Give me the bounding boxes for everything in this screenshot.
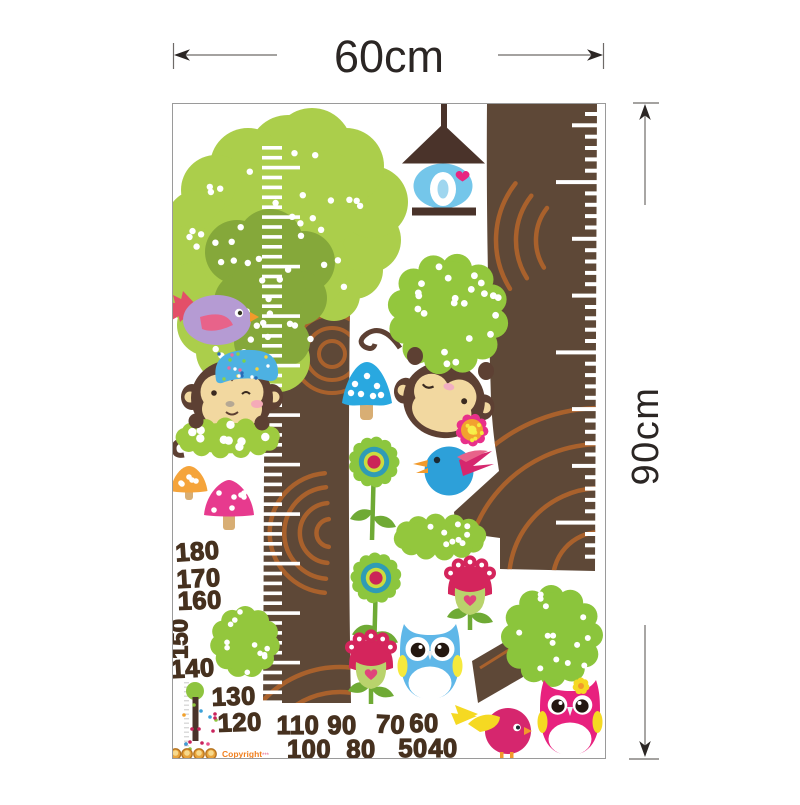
svg-text:180: 180	[174, 537, 220, 568]
svg-text:60: 60	[409, 710, 438, 738]
svg-text:140: 140	[170, 654, 215, 684]
svg-text:120: 120	[217, 708, 262, 738]
svg-text:90cm: 90cm	[625, 387, 667, 486]
svg-text:Copyright: Copyright	[222, 749, 262, 759]
svg-text:130: 130	[211, 682, 256, 712]
svg-text:160: 160	[177, 586, 222, 616]
svg-text:60cm: 60cm	[334, 31, 444, 82]
